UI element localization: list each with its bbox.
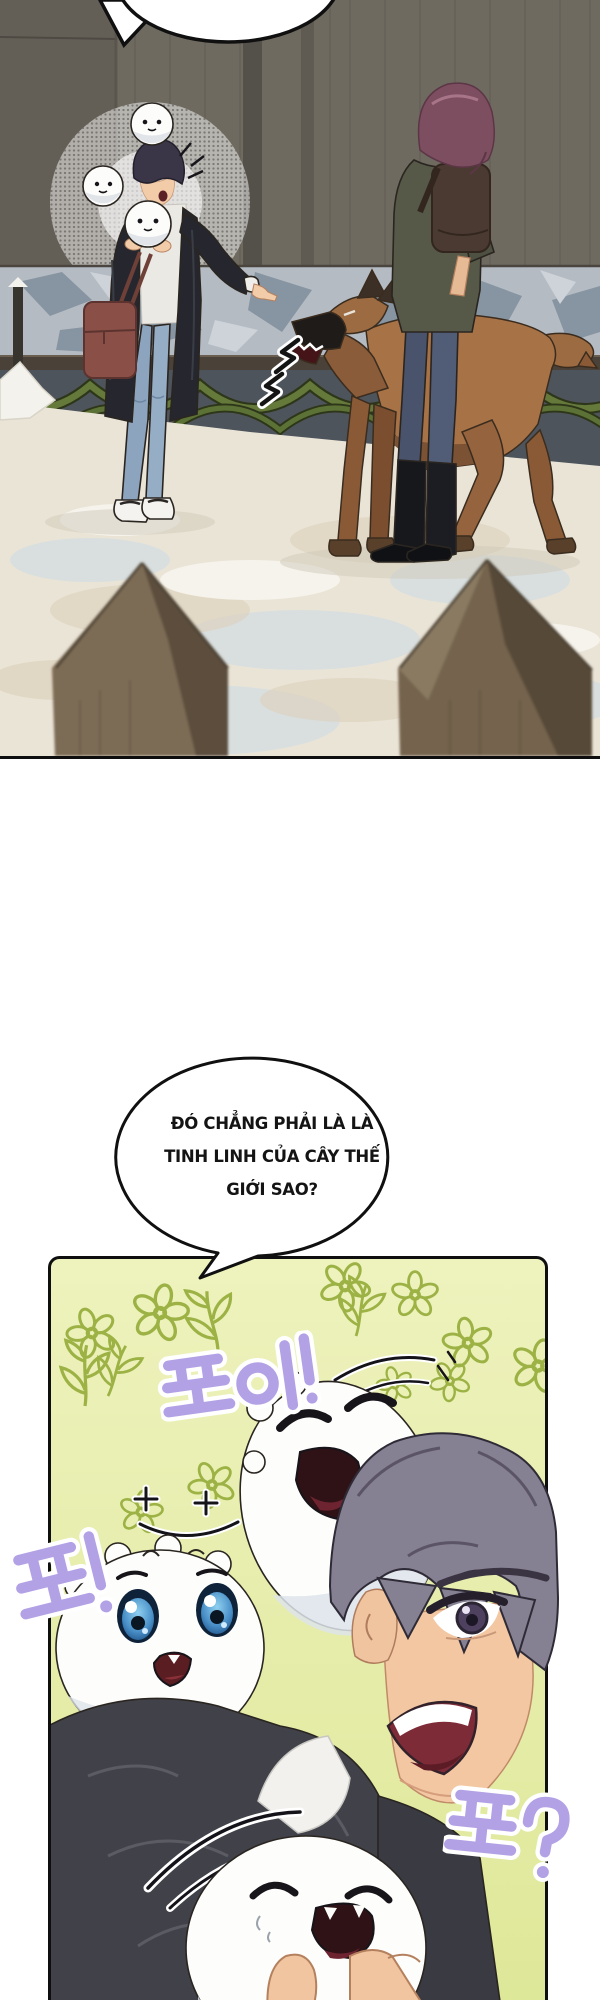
spirit-on-head xyxy=(131,103,173,145)
sfx-po-question xyxy=(438,1778,573,1902)
panel-1-illustration xyxy=(0,0,600,756)
bubble-line-2: TINH LINH CỦA CÂY THẾ xyxy=(164,1145,381,1166)
speech-bubble: ĐÓ CHẲNG PHẢI LÀ LÀ TINH LINH CỦA CÂY TH… xyxy=(100,1048,440,1293)
panel-1 xyxy=(0,0,600,759)
comic-page: ĐÓ CHẲNG PHẢI LÀ LÀ TINH LINH CỦA CÂY TH… xyxy=(0,0,600,2000)
bubble-line-3: GIỚI SAO? xyxy=(226,1180,318,1199)
bubble-line-1: ĐÓ CHẲNG PHẢI LÀ LÀ xyxy=(171,1111,374,1133)
spirit-in-hands xyxy=(125,201,171,252)
spirit-on-shoulder xyxy=(83,166,123,206)
shoulder-bag xyxy=(84,302,136,378)
